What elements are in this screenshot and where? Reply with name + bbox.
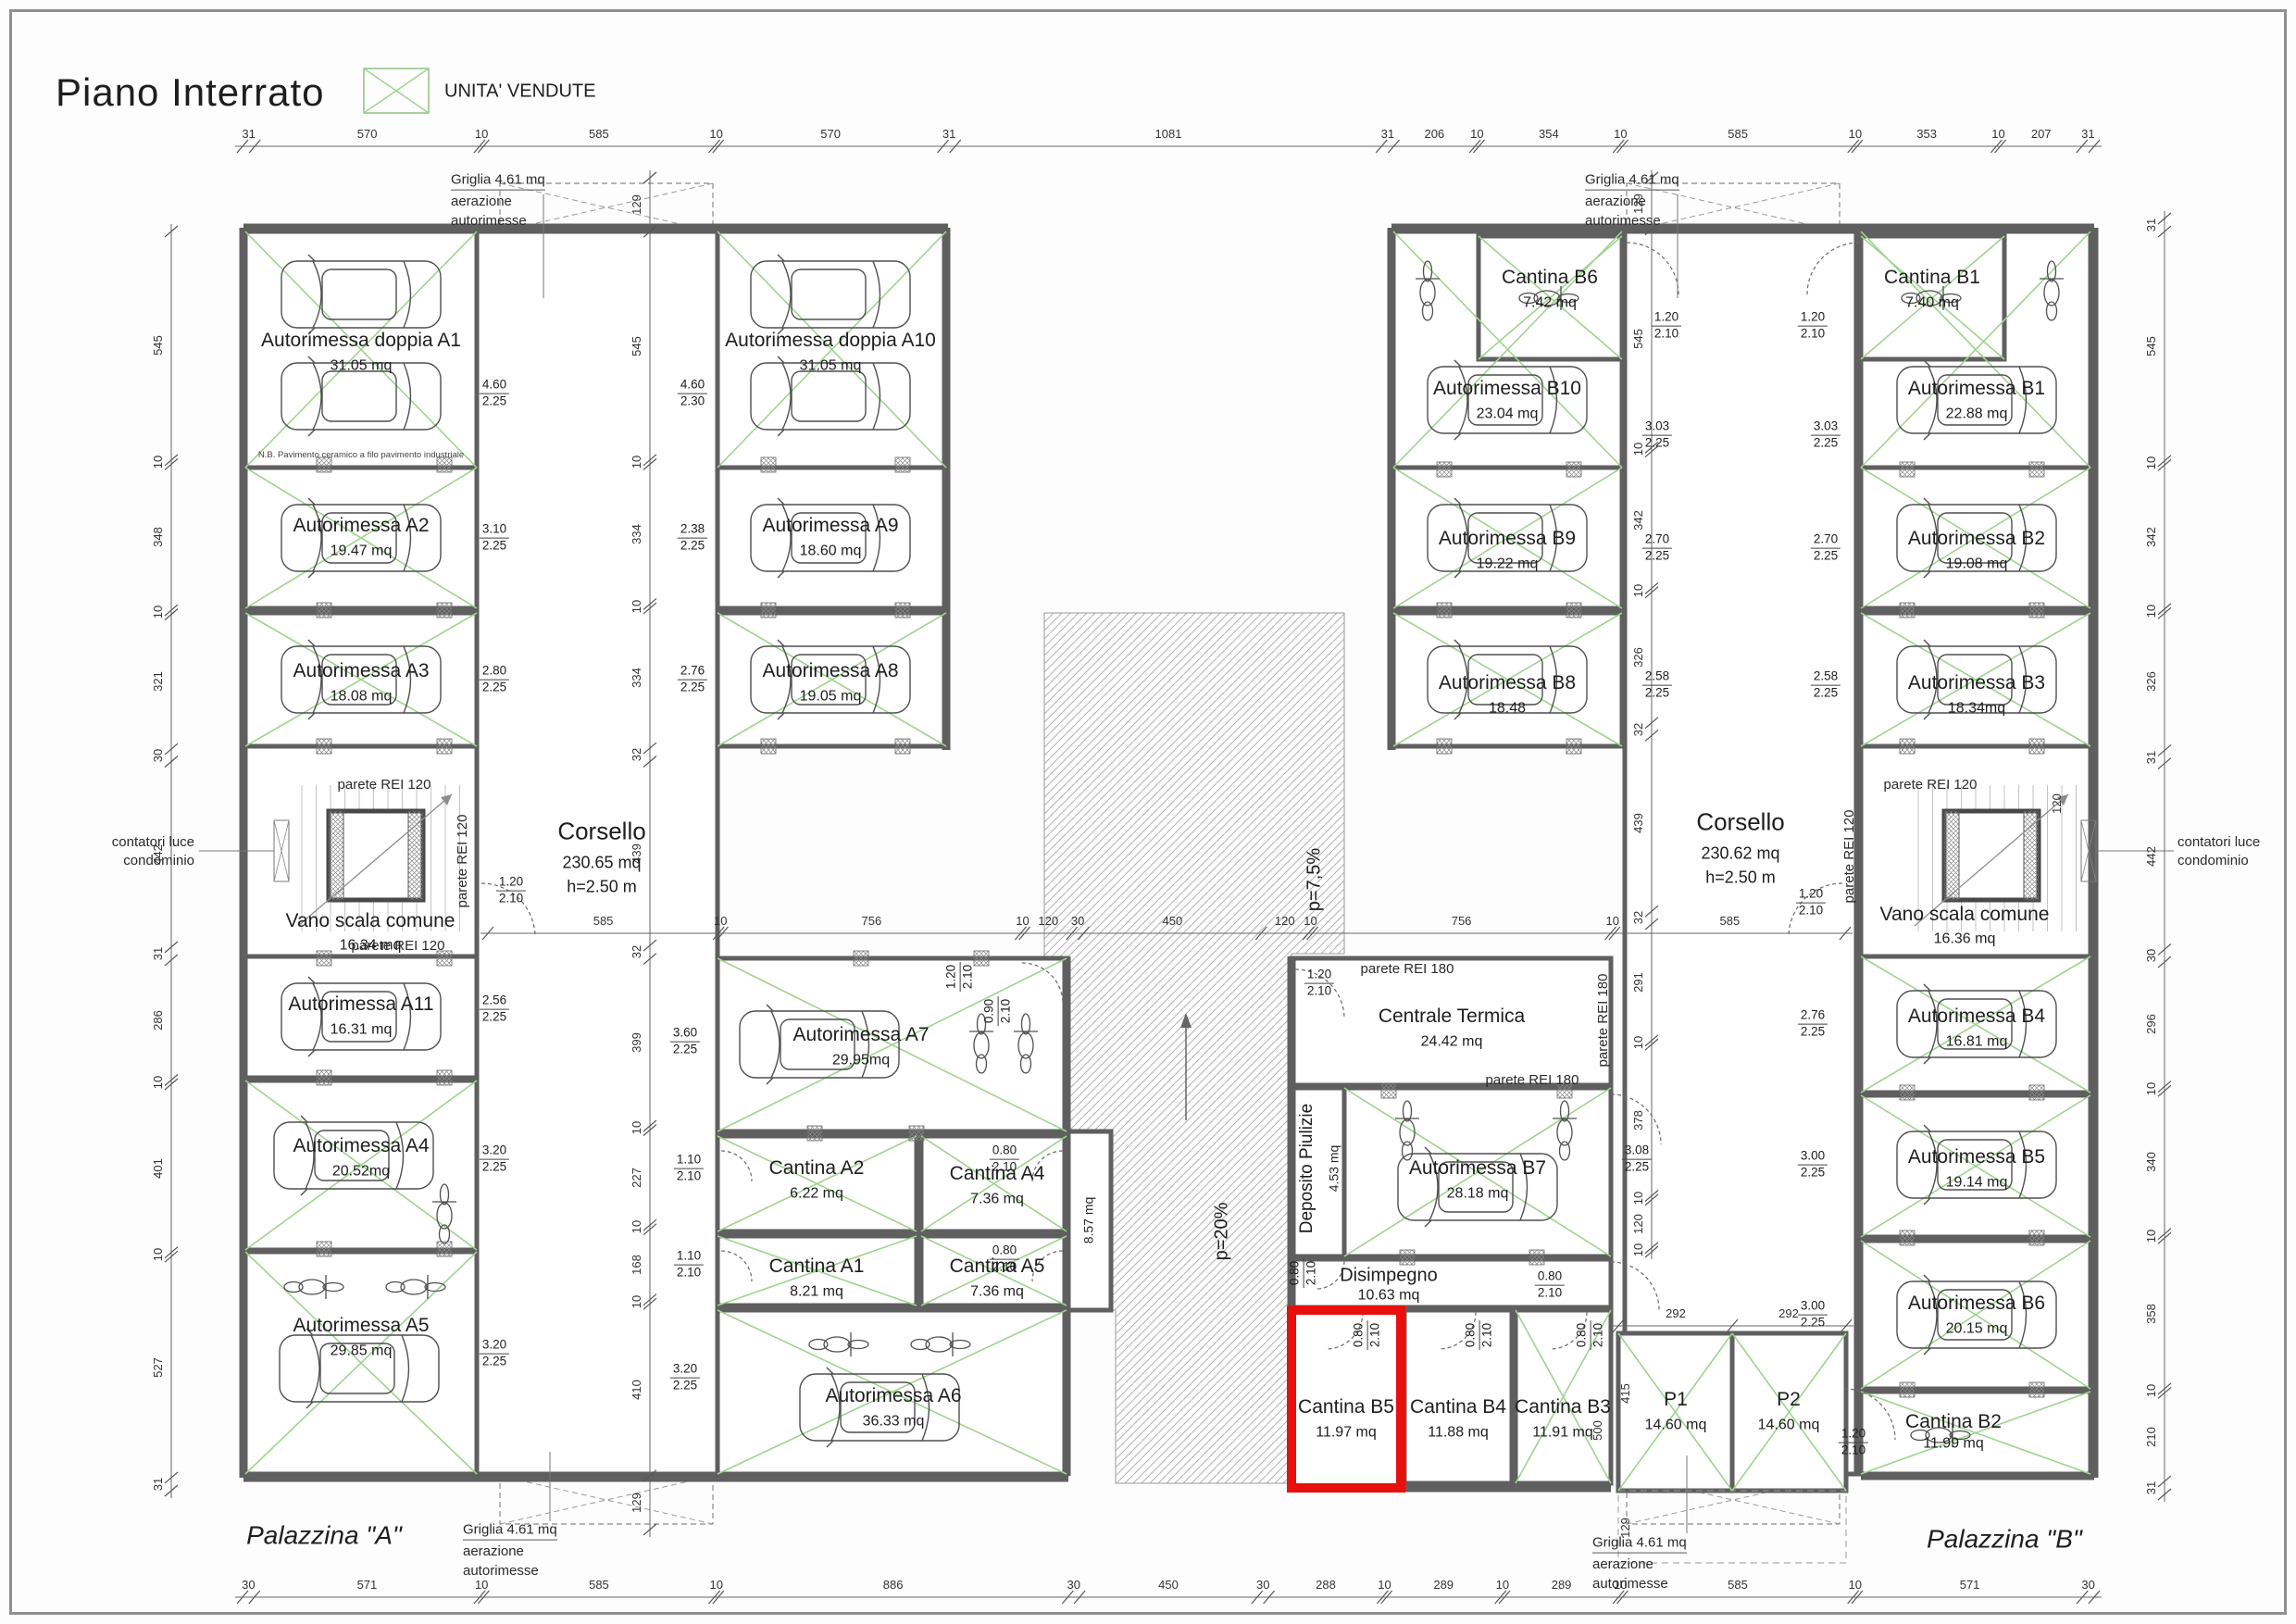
dim-fraction: 1.202.10: [1652, 310, 1681, 343]
pillar: [761, 603, 776, 618]
page-title: Piano Interrato: [56, 72, 325, 113]
dim-value: 10: [1632, 583, 1645, 596]
room-a6-area: 36.33 mq: [863, 1415, 925, 1430]
dim-value: 292: [1778, 1307, 1799, 1320]
dim-width: 3.20: [480, 1143, 509, 1160]
dim-height: 2.25: [482, 394, 506, 410]
vano-scala-a-name: Vano scala comune: [286, 911, 455, 931]
palazzina-a-label: Palazzina "A": [246, 1521, 402, 1548]
room-a9-area: 18.60 mq: [800, 544, 862, 560]
dim-value: 31: [2145, 219, 2158, 231]
dim-height: 2.10: [1304, 1261, 1320, 1285]
dim-value: 342: [2145, 527, 2158, 547]
dim-value: 10: [1632, 1036, 1645, 1049]
corsello-a-name: Corsello: [557, 818, 645, 843]
dim-value: 570: [820, 128, 841, 141]
dim-height: 2.10: [999, 999, 1015, 1023]
dim-value: 31: [2081, 128, 2094, 141]
dim-value: 378: [1632, 1110, 1645, 1131]
dim-fraction: 1.102.10: [674, 1249, 704, 1281]
room-dep-name: Deposito Piulizie: [1298, 1104, 1316, 1233]
room-a9: [717, 468, 946, 608]
dim-fraction: 4.602.25: [480, 378, 509, 410]
dim-fraction: 4.602.30: [678, 378, 707, 410]
dim-height: 2.25: [673, 1043, 697, 1058]
dim-fraction: 1.102.10: [674, 1153, 704, 1185]
room-a1-name: Autorimessa doppia A1: [261, 331, 461, 351]
pillar: [1566, 739, 1581, 754]
dim-fraction: 2.702.25: [1642, 532, 1672, 565]
dim-value: 10: [1614, 128, 1627, 141]
dim-value: 10: [1496, 1579, 1509, 1592]
room-b2-name: Autorimessa B2: [1908, 529, 2045, 549]
dim-height: 2.10: [1307, 984, 1331, 1000]
room-b7-area: 28.18 mq: [1447, 1187, 1509, 1203]
dim-value: 10: [1849, 128, 1862, 141]
parete-rei-120: parete REI 120: [338, 778, 431, 793]
pillar: [2029, 462, 2044, 477]
dim-width: 2.76: [1798, 1008, 1828, 1025]
contatori-label: condominio: [123, 854, 194, 868]
dim-fraction: 3.002.25: [1798, 1149, 1828, 1181]
dim-value: 129: [630, 194, 643, 215]
dim-value: 30: [1071, 915, 1084, 928]
pillar: [895, 739, 910, 754]
dim-value: 527: [152, 1357, 165, 1378]
pillar: [854, 951, 868, 966]
dim-fraction: 2.762.25: [678, 664, 707, 696]
pillar: [1566, 462, 1581, 477]
room-cb1-name: Cantina B1: [1884, 268, 1980, 288]
dim-value: 10: [1991, 128, 2004, 141]
pillar: [437, 603, 452, 618]
dim-width: 4.60: [678, 378, 707, 394]
dim-value: 30: [2081, 1579, 2094, 1592]
room-ct-area: 24.42 mq: [1421, 1035, 1483, 1051]
griglia-label: Griglia 4.61 mq: [1585, 173, 1679, 191]
dim-height: 2.25: [482, 1160, 506, 1176]
dim-value: 289: [1433, 1579, 1454, 1592]
room-b1-name: Autorimessa B1: [1908, 379, 2045, 399]
dim-fraction: 3.602.25: [670, 1026, 700, 1058]
pillar: [1900, 1230, 1915, 1245]
dim-height: 2.10: [677, 1169, 701, 1185]
dim-value: 31: [1381, 128, 1394, 141]
dim-height: 2.25: [482, 539, 506, 555]
griglia-label: Griglia 4.61 mq: [463, 1523, 557, 1541]
dim-value: 10: [475, 1579, 488, 1592]
dim-width: 1.20: [1839, 1427, 1868, 1443]
room-cb2-name: Cantina B2: [1905, 1412, 2002, 1432]
dim-width: 0.90: [982, 996, 999, 1026]
room-a10-area: 31.05 mq: [800, 359, 862, 375]
room-p2-name: P2: [1777, 1390, 1801, 1410]
room-a5-area: 29.85 mq: [331, 1344, 393, 1360]
dim-fraction: 0.802.10: [1464, 1320, 1496, 1350]
dim-value: 31: [242, 128, 255, 141]
room-b9-name: Autorimessa B9: [1439, 529, 1576, 549]
dim-height: 2.25: [482, 1010, 506, 1026]
dim-value: 31: [2145, 1481, 2158, 1494]
dim-value: 500: [1591, 1420, 1604, 1441]
contatori-label: contatori luce: [2177, 835, 2260, 850]
griglia-label: aerazione: [1592, 1557, 1653, 1572]
dim-height: 2.25: [680, 539, 705, 555]
dim-value: 10: [1304, 915, 1316, 928]
room-b5-name: Autorimessa B5: [1908, 1147, 2045, 1168]
pillar: [317, 739, 331, 754]
dim-value: 10: [152, 606, 165, 618]
dim-fraction: 2.702.25: [1811, 532, 1841, 565]
corsello-b-height: h=2.50 m: [1705, 869, 1776, 887]
dim-width: 2.70: [1811, 532, 1841, 549]
dim-value: 10: [152, 1076, 165, 1089]
pillar: [437, 1070, 452, 1085]
vano-scala-b-area: 16.36 mq: [1934, 932, 1996, 948]
dim-value: 326: [1632, 647, 1645, 668]
dim-value: 10: [630, 1220, 643, 1233]
dim-value: 289: [1552, 1579, 1572, 1592]
parete-rei-180: parete REI 180: [1596, 974, 1611, 1068]
dim-value: 10: [1849, 1579, 1862, 1592]
dim-fraction: 3.202.25: [480, 1143, 509, 1176]
pillar: [1900, 739, 1915, 754]
room-cb2-area: 11.99 mq: [1923, 1437, 1984, 1453]
dim-height: 2.25: [482, 681, 506, 696]
parete-rei-120: parete REI 120: [352, 939, 445, 954]
room-b7-name: Autorimessa B7: [1409, 1158, 1546, 1179]
dim-height: 2.10: [1841, 1443, 1865, 1459]
palazzina-b-label: Palazzina "B": [1927, 1525, 2082, 1552]
dim-value: 10: [2145, 605, 2158, 618]
dim-width: 2.38: [678, 522, 707, 539]
dim-value: 168: [630, 1255, 643, 1275]
dim-value: 354: [1539, 128, 1559, 141]
dim-value: 296: [2145, 1014, 2158, 1034]
room-a11-area: 16.31 mq: [331, 1023, 393, 1039]
room-b5-area: 19.14 mq: [1946, 1176, 2008, 1192]
dim-width: 1.20: [1652, 310, 1681, 327]
dim-height: 2.10: [992, 1160, 1017, 1176]
dim-height: 2.25: [680, 681, 705, 696]
room-b8-area: 18.48: [1489, 702, 1526, 718]
room-a3-name: Autorimessa A3: [293, 661, 429, 681]
dim-value: 399: [630, 1032, 643, 1053]
dim-width: 3.03: [1811, 419, 1841, 436]
plan-drawing: [0, 0, 2296, 1624]
dim-value: 10: [2145, 1082, 2158, 1095]
dim-value: 545: [630, 336, 643, 356]
dim-fraction: 0.802.10: [1352, 1320, 1384, 1350]
pillar: [761, 739, 776, 754]
room-b3-name: Autorimessa B3: [1908, 673, 2045, 693]
room-b6-name: Autorimessa B6: [1908, 1293, 2045, 1314]
pillar: [1900, 1382, 1915, 1397]
dim-value: 545: [1632, 329, 1645, 349]
dim-width: 0.80: [1352, 1320, 1368, 1350]
dim-height: 2.25: [1801, 1166, 1825, 1181]
griglia-label: aerazione: [463, 1544, 524, 1559]
griglia-label: autorimesse: [1592, 1577, 1668, 1592]
dim-fraction: 3.202.25: [670, 1362, 700, 1394]
dim-fraction: 3.202.25: [480, 1338, 509, 1370]
pillar: [895, 603, 910, 618]
room-cb4-area: 11.88 mq: [1428, 1426, 1489, 1442]
dim-width: 0.80: [1464, 1320, 1480, 1350]
room-a3-area: 18.08 mq: [331, 690, 393, 706]
griglia-label: Griglia 4.61 mq: [451, 173, 545, 191]
room-b6-area: 20.15 mq: [1946, 1322, 2008, 1338]
dim-width: 2.58: [1811, 669, 1841, 686]
pillar: [1900, 462, 1915, 477]
dim-fraction: 3.082.25: [1622, 1143, 1652, 1176]
griglia-label: autorimesse: [451, 214, 527, 229]
pillar: [1400, 1250, 1415, 1265]
dim-fraction: 1.202.10: [1798, 310, 1828, 343]
dim-width: 3.03: [1642, 419, 1672, 436]
room-b1-area: 22.88 mq: [1946, 407, 2008, 423]
dim-value: 32: [1632, 911, 1645, 924]
dim-120: 120: [2051, 793, 2064, 814]
griglia-label: Griglia 4.61 mq: [1592, 1536, 1687, 1554]
dim-value: 326: [2145, 672, 2158, 693]
dim-width: 1.10: [674, 1153, 704, 1169]
dim-fraction: 2.762.25: [1798, 1008, 1828, 1041]
room-dis-name: Disimpegno: [1340, 1267, 1438, 1286]
dim-value: 450: [1163, 915, 1183, 928]
room-cb4-name: Cantina B4: [1410, 1397, 1506, 1418]
dim-width: 0.80: [990, 1143, 1019, 1160]
pillar: [437, 1242, 452, 1256]
room-p2-area: 14.60 mq: [1758, 1418, 1820, 1434]
room-b10-name: Autorimessa B10: [1433, 379, 1581, 399]
dim-height: 2.10: [1591, 1323, 1607, 1347]
contatori-label: contatori luce: [112, 835, 194, 850]
pavimento-note: N.B. Pavimento ceramico a filo pavimento…: [258, 451, 464, 460]
pillar: [2029, 1230, 2044, 1245]
dim-height: 2.25: [1645, 436, 1669, 452]
pillar: [909, 1126, 924, 1141]
dim-height: 2.30: [680, 394, 705, 410]
dim-fraction: 2.802.25: [480, 664, 509, 696]
room-a8-area: 19.05 mq: [800, 690, 862, 706]
dim-fraction: 3.002.25: [1798, 1299, 1828, 1331]
room-ca2-area: 6.22 mq: [790, 1187, 843, 1203]
dim-value: 30: [1067, 1579, 1080, 1592]
dim-value: 439: [1632, 813, 1645, 833]
dim-value: 585: [593, 915, 614, 928]
dim-value: 292: [1666, 1307, 1686, 1320]
pillar: [807, 1126, 822, 1141]
dim-height: 2.10: [1654, 327, 1678, 343]
room-b2-area: 19.08 mq: [1946, 557, 2008, 573]
dim-width: 0.80: [1535, 1269, 1565, 1286]
dim-value: 321: [152, 671, 165, 692]
dim-fraction: 1.202.10: [1839, 1427, 1868, 1459]
dim-height: 2.10: [1480, 1323, 1496, 1347]
room-ca5-area: 7.36 mq: [970, 1285, 1024, 1301]
legend-label: UNITA' VENDUTE: [444, 82, 595, 102]
dim-height: 2.25: [1801, 1025, 1825, 1041]
dim-width: 3.20: [480, 1338, 509, 1355]
room-a5-name: Autorimessa A5: [293, 1316, 429, 1336]
dim-height: 2.25: [1814, 436, 1838, 452]
pillar: [1381, 1083, 1396, 1098]
griglia-label: aerazione: [1585, 194, 1646, 209]
parete-rei-120: parete REI 120: [1842, 810, 1857, 904]
ramp-slope-lower: p=20%: [1213, 1203, 1232, 1261]
dim-fraction: 0.802.10: [1288, 1258, 1320, 1288]
dim-height: 2.25: [482, 1355, 506, 1370]
dim-value: 570: [357, 128, 378, 141]
room-a1-area: 31.05 mq: [331, 359, 393, 375]
dim-width: 1.20: [1798, 310, 1828, 327]
dim-value: 585: [589, 1579, 609, 1592]
dim-value: 571: [357, 1579, 378, 1592]
dim-width: 1.20: [1304, 968, 1334, 984]
pillar: [2029, 739, 2044, 754]
dim-value: 10: [714, 915, 727, 928]
room-ca1-name: Cantina A1: [769, 1256, 865, 1277]
dim-value: 585: [589, 128, 609, 141]
dim-value: 10: [630, 599, 643, 612]
dim-width: 1.20: [944, 962, 961, 992]
dim-value: 10: [1632, 1243, 1645, 1256]
dim-value: 10: [709, 1579, 722, 1592]
dim-fraction: 3.032.25: [1642, 419, 1672, 452]
parete-rei-120: parete REI 120: [1884, 778, 1978, 793]
corsello-b-area: 230.62 mq: [1701, 845, 1779, 863]
room-ca2-name: Cantina A2: [769, 1158, 865, 1179]
pillar: [1566, 603, 1581, 618]
dim-value: 120: [1038, 915, 1058, 928]
dim-width: 3.10: [480, 522, 509, 539]
dim-value: 30: [242, 1579, 255, 1592]
dim-value: 32: [630, 945, 643, 958]
pillar: [2029, 1085, 2044, 1100]
dim-value: 32: [630, 748, 643, 761]
dim-height: 2.25: [1625, 1160, 1649, 1176]
dim-height: 2.10: [1368, 1323, 1384, 1347]
room-p1-name: P1: [1664, 1390, 1688, 1410]
dim-value: 1081: [1155, 128, 1182, 141]
dim-value: 358: [2145, 1304, 2158, 1324]
dim-fraction: 0.802.10: [990, 1143, 1019, 1176]
elevator-wall: [2024, 811, 2039, 900]
dim-value: 756: [862, 915, 882, 928]
parete-rei-180: parete REI 180: [1361, 962, 1454, 977]
dim-value: 291: [1632, 972, 1645, 993]
dim-fraction: 2.562.25: [480, 993, 509, 1026]
dim-width: 2.58: [1642, 669, 1672, 686]
room-a11-name: Autorimessa A11: [288, 994, 433, 1015]
parete-rei-120: parete REI 120: [455, 815, 470, 908]
dim-value: 10: [1470, 128, 1483, 141]
dim-height: 2.10: [992, 1260, 1017, 1276]
pillar: [317, 1070, 331, 1085]
dim-fraction: 3.102.25: [480, 522, 509, 555]
dim-value: 410: [630, 1380, 643, 1400]
dim-height: 2.10: [1799, 904, 1823, 919]
dim-fraction: 0.802.10: [1575, 1320, 1607, 1350]
dim-fraction: 1.202.10: [1304, 968, 1334, 1000]
dim-value: 10: [475, 128, 488, 141]
room-dis-area: 10.63 mq: [1358, 1289, 1420, 1305]
room-a2-area: 19.47 mq: [331, 544, 393, 560]
dim-height: 2.10: [677, 1266, 701, 1281]
room-a10-name: Autorimessa doppia A10: [725, 331, 936, 351]
dim-value: 10: [630, 456, 643, 468]
dim-value: 32: [1632, 722, 1645, 735]
elevator-wall: [1944, 811, 1959, 900]
dim-value: 348: [152, 527, 165, 547]
dim-height: 2.10: [1801, 327, 1825, 343]
dim-value: 10: [1632, 1191, 1645, 1204]
dim-fraction: 0.902.10: [982, 996, 1015, 1026]
dim-value: 207: [2031, 128, 2052, 141]
dim-width: 2.76: [678, 664, 707, 681]
dim-value: 10: [2145, 1384, 2158, 1397]
pillar: [2029, 603, 2044, 618]
dim-width: 1.10: [674, 1249, 704, 1266]
dim-height: 2.10: [1538, 1286, 1562, 1302]
dim-value: 401: [152, 1158, 165, 1179]
dim-value: 585: [1720, 915, 1741, 928]
vano-scala-b-name: Vano scala comune: [1880, 905, 2050, 925]
room-cb5-name: Cantina B5: [1298, 1397, 1394, 1418]
room-ct-name: Centrale Termica: [1379, 1006, 1525, 1027]
room-dep-area: 4.53 mq: [1328, 1145, 1341, 1193]
contatori-label: condominio: [2177, 854, 2249, 868]
dim-value: 30: [1256, 1579, 1269, 1592]
corridoio-area: 8.57 mq: [1082, 1197, 1096, 1244]
dim-width: 3.08: [1622, 1143, 1652, 1160]
dim-value: 342: [1632, 510, 1645, 531]
dim-height: 2.25: [1814, 686, 1838, 702]
elevator-wall: [329, 811, 343, 900]
pillar: [1900, 1085, 1915, 1100]
room-p1-area: 14.60 mq: [1645, 1418, 1707, 1434]
dim-value: 10: [2145, 1230, 2158, 1243]
dim-value: 10: [709, 128, 722, 141]
room-ca1-area: 8.21 mq: [790, 1285, 843, 1301]
dim-height: 2.10: [961, 965, 977, 989]
dim-value: 450: [1158, 1579, 1179, 1592]
room-b4-area: 16.81 mq: [1946, 1035, 2008, 1051]
corsello-a-area: 230.65 mq: [562, 855, 641, 872]
room-a2-name: Autorimessa A2: [293, 516, 429, 536]
dim-value: 334: [630, 524, 643, 544]
dim-height: 2.25: [1801, 1316, 1825, 1331]
dim-width: 2.70: [1642, 532, 1672, 549]
dim-height: 2.25: [1814, 549, 1838, 565]
room-b4-name: Autorimessa B4: [1908, 1006, 2045, 1027]
dim-fraction: 0.802.10: [1535, 1269, 1565, 1302]
dim-width: 4.60: [480, 378, 509, 394]
dim-height: 2.25: [1645, 686, 1669, 702]
parete-rei-180: parete REI 180: [1486, 1073, 1579, 1088]
dim-fraction: 2.582.25: [1642, 669, 1672, 702]
dim-value: 10: [630, 1295, 643, 1308]
room-a7-name: Autorimessa A7: [792, 1025, 929, 1045]
dim-height: 2.25: [673, 1379, 697, 1394]
dim-width: 3.20: [670, 1362, 700, 1379]
pillar: [895, 457, 910, 472]
dim-value: 10: [152, 1248, 165, 1261]
dim-fraction: 2.382.25: [678, 522, 707, 555]
pillar: [1900, 603, 1915, 618]
room-cb6-area: 7.42 mq: [1523, 296, 1577, 312]
